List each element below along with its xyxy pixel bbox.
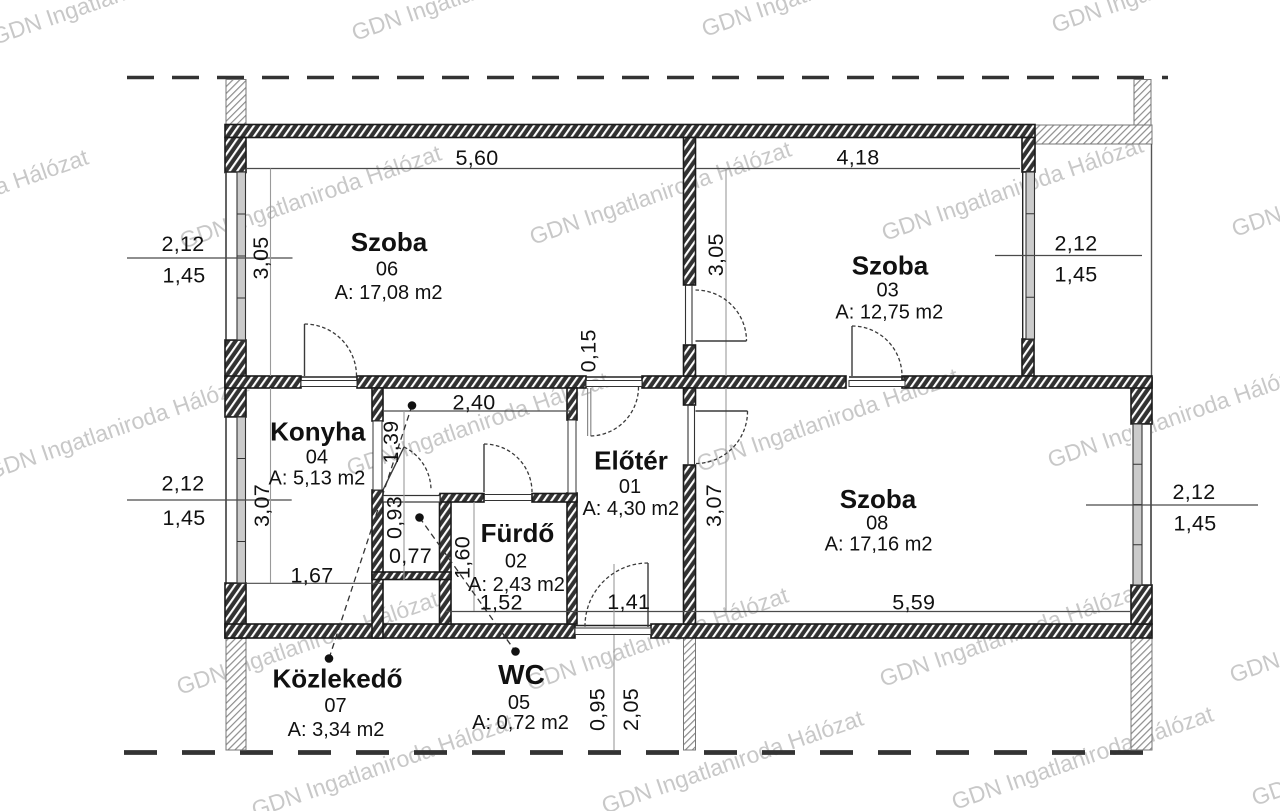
svg-text:0,77: 0,77 [389,544,432,568]
svg-text:1,45: 1,45 [1173,511,1216,535]
svg-text:1,67: 1,67 [290,564,333,588]
svg-text:3,07: 3,07 [250,484,274,527]
svg-text:A: 4,30 m2: A: 4,30 m2 [582,498,679,520]
svg-text:1,45: 1,45 [162,264,205,288]
svg-text:Konyha: Konyha [270,417,366,447]
svg-text:1,45: 1,45 [1054,263,1097,287]
svg-text:WC: WC [498,659,545,690]
svg-text:2,05: 2,05 [619,688,643,731]
svg-text:1,39: 1,39 [379,420,403,463]
svg-text:1,52: 1,52 [480,591,523,615]
svg-text:A: 12,75 m2: A: 12,75 m2 [835,301,943,323]
svg-text:1,41: 1,41 [607,590,650,614]
svg-text:A: 5,13 m2: A: 5,13 m2 [269,468,366,490]
svg-text:2,12: 2,12 [161,472,204,496]
svg-text:Közlekedő: Közlekedő [272,664,402,694]
svg-text:0,93: 0,93 [382,496,406,539]
svg-text:2,40: 2,40 [452,391,495,415]
svg-text:3,05: 3,05 [249,236,273,279]
svg-text:A: 17,16 m2: A: 17,16 m2 [825,533,933,555]
svg-text:0,95: 0,95 [586,688,610,731]
svg-text:03: 03 [876,279,898,301]
svg-text:3,07: 3,07 [702,484,726,527]
svg-text:08: 08 [866,513,888,535]
svg-text:5,59: 5,59 [892,591,935,615]
svg-text:01: 01 [619,476,641,498]
svg-text:A: 0,72 m2: A: 0,72 m2 [472,712,569,734]
svg-text:4,18: 4,18 [836,146,879,170]
svg-text:Szoba: Szoba [852,251,929,281]
svg-text:2,12: 2,12 [1054,232,1097,256]
svg-text:Előtér: Előtér [594,445,668,475]
svg-text:Szoba: Szoba [351,227,428,257]
svg-text:A: 3,34 m2: A: 3,34 m2 [288,719,385,741]
svg-text:2,12: 2,12 [161,232,204,256]
svg-text:2,12: 2,12 [1172,480,1215,504]
svg-text:Fürdő: Fürdő [481,518,555,548]
svg-text:0,15: 0,15 [576,329,600,372]
svg-text:A: 17,08 m2: A: 17,08 m2 [335,282,443,304]
svg-text:1,45: 1,45 [162,506,205,530]
svg-text:02: 02 [505,551,527,573]
svg-text:07: 07 [324,695,346,717]
svg-text:5,60: 5,60 [455,146,498,170]
svg-text:04: 04 [306,446,328,468]
svg-text:3,05: 3,05 [704,233,728,276]
svg-text:1,60: 1,60 [450,536,474,579]
svg-text:05: 05 [508,692,530,714]
svg-text:06: 06 [376,259,398,281]
svg-text:Szoba: Szoba [840,484,917,514]
